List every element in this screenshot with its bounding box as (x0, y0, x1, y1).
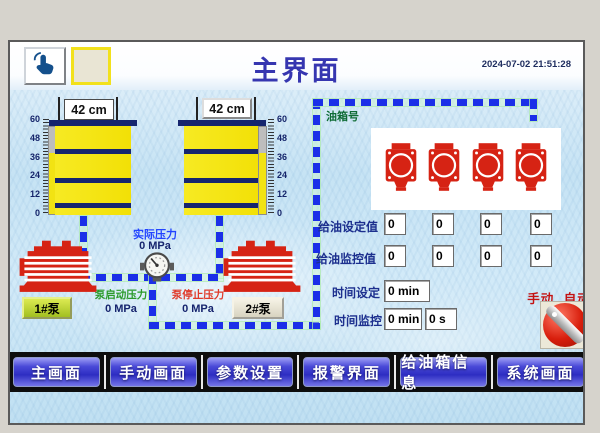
nav-manual-screen[interactable]: 手动画面 (110, 357, 197, 387)
oil-tank-number-label: 油箱号 (326, 108, 359, 124)
nav-separator (394, 355, 396, 389)
nav-main-screen[interactable]: 主画面 (13, 357, 100, 387)
oil-monitor-value-1[interactable]: 0 (384, 245, 406, 267)
level-caliper-left2 (196, 97, 198, 122)
panel-border-top (313, 99, 537, 106)
tank1-barrel (55, 126, 131, 215)
nav-alarm-screen[interactable]: 报警界面 (303, 357, 390, 387)
window-frame: 主界面 2024-07-02 21:51:28 42 cm 6048 3624 … (0, 0, 600, 433)
bottom-nav-bar: 主画面 手动画面 参数设置 报警界面 给油箱信息 系统画面 (10, 352, 585, 392)
oil-station-icons-box (371, 128, 561, 210)
oil-station-icon-4 (514, 140, 548, 199)
switch-handle (544, 304, 585, 346)
tank2-scale-ticks (268, 119, 274, 215)
header-bar: 主界面 2024-07-02 21:51:28 (10, 42, 583, 90)
nav-oil-tank-info[interactable]: 给油箱信息 (400, 357, 487, 387)
time-monitor-minutes[interactable]: 0 min (384, 308, 422, 330)
oil-set-input-3[interactable]: 0 (480, 213, 502, 235)
oil-station-icon-2 (427, 140, 461, 199)
oil-monitor-value-2[interactable]: 0 (432, 245, 454, 267)
pump-stop-pressure-value: 0 MPa (160, 303, 236, 315)
tank2-cap (178, 120, 266, 126)
nav-separator (491, 355, 493, 389)
datetime-display: 2024-07-02 21:51:28 (482, 59, 571, 70)
oil-set-input-1[interactable]: 0 (384, 213, 406, 235)
level-caliper-right2 (254, 97, 256, 122)
tank2-level-bar (258, 126, 267, 215)
oil-station-icon-1 (384, 140, 418, 199)
pump-start-pressure-value: 0 MPa (82, 303, 160, 315)
hmi-screen: 主界面 2024-07-02 21:51:28 42 cm 6048 3624 … (8, 40, 585, 425)
pump1-button[interactable]: 1#泵 (22, 297, 72, 319)
tank2-level-display: 42 cm (202, 98, 252, 119)
mode-selector-switch[interactable] (540, 301, 585, 349)
pressure-gauge-icon (140, 251, 174, 288)
oil-station-icon-3 (471, 140, 505, 199)
nav-separator (201, 355, 203, 389)
tank2-scale-labels: 6048 3624 120 (277, 114, 295, 218)
oil-set-input-2[interactable]: 0 (432, 213, 454, 235)
switch-knob (543, 303, 585, 347)
oil-monitor-label: 给油监控值 (316, 250, 376, 267)
panel-border-stub (530, 99, 537, 121)
tank1-level-display: 42 cm (64, 99, 114, 120)
oil-set-label: 给油设定值 (318, 218, 378, 235)
time-set-label: 时间设定 (332, 284, 380, 301)
pipe-bottom (149, 322, 320, 329)
oil-monitor-value-3[interactable]: 0 (480, 245, 502, 267)
nav-parameter-settings[interactable]: 参数设置 (207, 357, 294, 387)
pump2-button[interactable]: 2#泵 (232, 297, 284, 319)
tank2-barrel (184, 126, 260, 215)
time-monitor-seconds[interactable]: 0 s (425, 308, 457, 330)
nav-separator (297, 355, 299, 389)
level-caliper-left (58, 97, 60, 122)
tank1-cap (49, 120, 137, 126)
nav-system-screen[interactable]: 系统画面 (497, 357, 584, 387)
pump2-motor-icon (222, 239, 302, 297)
time-set-input[interactable]: 0 min (384, 280, 430, 302)
tank1-scale-labels: 6048 3624 120 (22, 114, 40, 218)
oil-set-input-4[interactable]: 0 (530, 213, 552, 235)
level-caliper-right (116, 97, 118, 122)
pump1-motor-icon (18, 239, 98, 297)
switch-dot (552, 312, 557, 317)
time-monitor-label: 时间监控 (334, 312, 382, 329)
nav-separator (104, 355, 106, 389)
panel-border-left (313, 99, 320, 329)
oil-monitor-value-4[interactable]: 0 (530, 245, 552, 267)
